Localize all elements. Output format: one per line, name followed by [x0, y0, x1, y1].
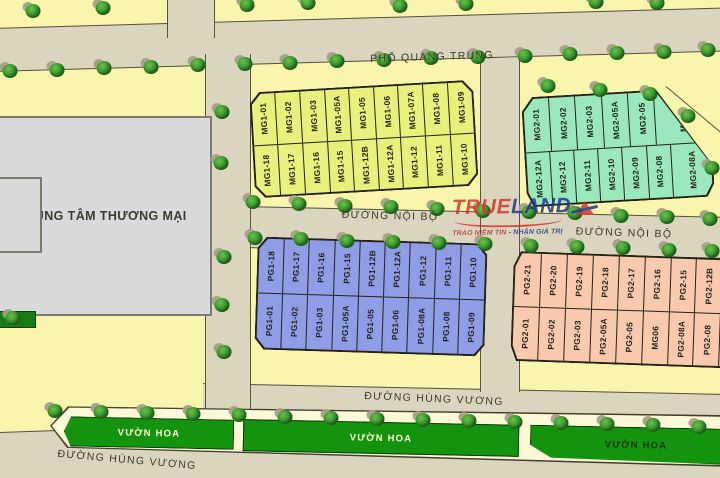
- tree-icon: [370, 412, 385, 426]
- logo-arrow-icon: [573, 200, 592, 216]
- tree-icon: [48, 404, 63, 418]
- plot-MG1-10: MG1-10: [451, 133, 478, 185]
- plot-PG2-05A: PG2-05A: [590, 309, 618, 363]
- tree-icon: [140, 406, 155, 420]
- street-label-noi-bo-left: ĐƯỜNG NỘI BỘ: [342, 209, 439, 224]
- site-plan-map: VƯỜN HOA VƯỜN HOA VƯỜN HOA TRUNG TÂM THƯ…: [0, 0, 720, 478]
- tree-icon: [660, 210, 675, 224]
- tree-icon: [610, 46, 625, 60]
- tree-icon: [3, 64, 18, 78]
- plot-PG2-15: PG2-15: [669, 258, 697, 312]
- tree-icon: [643, 87, 658, 101]
- tree-icon: [232, 408, 247, 422]
- plot-MG1-03: MG1-03: [300, 90, 328, 142]
- tree-icon: [217, 250, 232, 264]
- tree-icon: [294, 232, 309, 246]
- plot-PG1-10: PG1-10: [460, 244, 486, 299]
- plot-MG1-07A: MG1-07A: [398, 84, 426, 136]
- tree-icon: [144, 60, 159, 74]
- plot-MG1-01: MG1-01: [251, 93, 279, 145]
- plot-MG1-11: MG1-11: [426, 135, 454, 187]
- tree-icon: [6, 311, 21, 325]
- tree-icon: [705, 161, 720, 175]
- plot-PG1-12A: PG1-12A: [384, 242, 411, 297]
- plot-PG1-05: PG1-05: [357, 297, 384, 352]
- plot-PG2-03: PG2-03: [564, 308, 592, 362]
- tree-icon: [393, 0, 408, 13]
- tree-icon: [705, 244, 720, 258]
- tree-icon: [554, 416, 569, 430]
- plot-MG1-15: MG1-15: [328, 140, 356, 192]
- tree-icon: [238, 57, 253, 71]
- plot-PG2-12B: PG2-12B: [695, 259, 720, 313]
- tree-icon: [518, 49, 533, 63]
- plot-MG2-08: MG2-08: [647, 144, 674, 198]
- garden-strip: VƯỜN HOA: [64, 416, 235, 450]
- tree-icon: [26, 4, 41, 18]
- tree-icon: [593, 83, 608, 97]
- tree-icon: [248, 231, 263, 245]
- logo-text-red: TRUE: [452, 196, 512, 218]
- plot-PG2-16: PG2-16: [644, 257, 672, 311]
- plot-PG2-02: PG2-02: [538, 307, 566, 361]
- plot-PG2-17: PG2-17: [618, 256, 646, 310]
- tree-icon: [646, 418, 661, 432]
- plot-MG1-16: MG1-16: [303, 142, 331, 194]
- tree-icon: [292, 197, 307, 211]
- logo-text-blue: LAND: [511, 195, 572, 217]
- tree-icon: [278, 410, 293, 424]
- tree-icon: [614, 209, 629, 223]
- plot-MG2-01: MG2-01: [523, 98, 552, 152]
- plot-PG1-06: PG1-06: [382, 297, 409, 352]
- logo-tagline-right: - NHẬN GIÁ TRỊ: [507, 228, 563, 236]
- plot-MG1-05: MG1-05: [349, 87, 377, 139]
- plot-PG1-15: PG1-15: [334, 240, 361, 295]
- garden-label: VƯỜN HOA: [605, 439, 668, 451]
- plot-MG1-12: MG1-12: [401, 136, 429, 188]
- logo-swoosh-icon: [454, 217, 562, 228]
- tree-icon: [478, 237, 493, 251]
- tree-icon: [657, 45, 672, 59]
- tree-icon: [524, 239, 539, 253]
- tree-icon: [283, 56, 298, 70]
- building-annex: [0, 177, 42, 253]
- plot-PG1-18: PG1-18: [258, 238, 285, 293]
- plot-PG1-16: PG1-16: [308, 240, 335, 295]
- plot-PG1-08A: PG1-08A: [408, 298, 435, 353]
- plot-MG2-03: MG2-03: [575, 94, 604, 148]
- tree-icon: [662, 243, 677, 257]
- road-hung-vuong-wedge: [0, 430, 63, 473]
- tree-icon: [570, 240, 585, 254]
- tree-icon: [330, 54, 345, 68]
- block-PG1: PG1-18PG1-17PG1-16PG1-15PG1-12BPG1-12APG…: [254, 236, 487, 356]
- tree-icon: [701, 43, 716, 57]
- plot-PG2-08: PG2-08: [694, 313, 720, 367]
- plot-PG1-05A: PG1-05A: [332, 296, 359, 351]
- plot-PG2-08A: PG2-08A: [668, 312, 696, 366]
- tree-icon: [462, 414, 477, 428]
- tree-icon: [681, 109, 696, 123]
- tree-icon: [96, 1, 111, 15]
- tree-icon: [600, 417, 615, 431]
- plot-MG2-10: MG2-10: [598, 147, 625, 201]
- tree-icon: [340, 234, 355, 248]
- plot-MG1-09: MG1-09: [448, 81, 475, 133]
- plot-PG2-05: PG2-05: [616, 310, 644, 364]
- plot-PG2-01: PG2-01: [512, 306, 540, 360]
- plot-MG1-02: MG1-02: [275, 91, 303, 143]
- plot-PG2-20: PG2-20: [540, 253, 568, 307]
- tree-icon: [703, 212, 718, 226]
- plot-MG1-06: MG1-06: [374, 86, 402, 138]
- plot-MG1-18: MG1-18: [254, 144, 282, 196]
- road-vertical-top: [167, 0, 215, 38]
- tree-icon: [217, 345, 232, 359]
- plot-PG2-18: PG2-18: [592, 255, 620, 309]
- plot-MG2-05A: MG2-05A: [601, 93, 630, 147]
- block-PG2: PG2-21PG2-20PG2-19PG2-18PG2-17PG2-16PG2-…: [510, 251, 720, 369]
- tree-icon: [186, 407, 201, 421]
- tree-icon: [386, 235, 401, 249]
- tree-icon: [692, 420, 707, 434]
- plot-PG1-11: PG1-11: [435, 244, 462, 299]
- tree-icon: [215, 298, 230, 312]
- trueland-logo: TRUELAND TRAO NIỀM TIN - NHẬN GIÁ TRỊ: [452, 195, 593, 237]
- block-MG1: MG1-01MG1-02MG1-03MG1-05AMG1-05MG1-06MG1…: [249, 80, 479, 199]
- plot-MG1-12A: MG1-12A: [377, 137, 405, 189]
- tree-icon: [215, 105, 230, 119]
- plot-PG2-21: PG2-21: [514, 253, 542, 307]
- tree-icon: [50, 63, 65, 77]
- tree-icon: [541, 79, 556, 93]
- garden-label: VƯỜN HOA: [350, 432, 413, 444]
- plot-PG1-03: PG1-03: [307, 295, 334, 350]
- tree-icon: [240, 0, 255, 12]
- tree-icon: [191, 58, 206, 72]
- plot-MG1-05A: MG1-05A: [325, 88, 353, 140]
- tree-icon: [508, 415, 523, 429]
- plot-MG1-08: MG1-08: [423, 83, 451, 135]
- tree-icon: [97, 61, 112, 75]
- plot-PG1-12: PG1-12: [409, 243, 436, 298]
- tree-icon: [324, 411, 339, 425]
- plot-MG1-17: MG1-17: [278, 143, 306, 195]
- tree-icon: [416, 413, 431, 427]
- plot-PG1-02: PG1-02: [281, 294, 308, 349]
- plot-PG2-19: PG2-19: [566, 254, 594, 308]
- plot-PG1-08: PG1-08: [433, 299, 460, 354]
- plot-MG1-12B: MG1-12B: [352, 139, 380, 191]
- plot-MG2-09: MG2-09: [622, 146, 649, 200]
- garden-label: VƯỜN HOA: [118, 427, 181, 439]
- tree-icon: [616, 241, 631, 255]
- tree-icon: [301, 0, 316, 10]
- plot-PG1-17: PG1-17: [283, 239, 310, 294]
- plot-PG1-12B: PG1-12B: [359, 241, 386, 296]
- tree-icon: [432, 236, 447, 250]
- plot-MG2-02: MG2-02: [549, 96, 578, 150]
- plot-PG1-09: PG1-09: [458, 300, 484, 355]
- tree-icon: [94, 405, 109, 419]
- tree-icon: [589, 0, 604, 9]
- plot-PG1-01: PG1-01: [256, 293, 283, 348]
- logo-tagline-left: TRAO NIỀM TIN: [452, 229, 506, 237]
- tree-icon: [214, 156, 229, 170]
- tree-icon: [459, 0, 474, 11]
- plot-MG06: MG06: [642, 311, 670, 365]
- tree-icon: [246, 195, 261, 209]
- building-label: TRUNG TÂM THƯƠNG MẠI: [17, 209, 186, 223]
- tree-icon: [563, 47, 578, 61]
